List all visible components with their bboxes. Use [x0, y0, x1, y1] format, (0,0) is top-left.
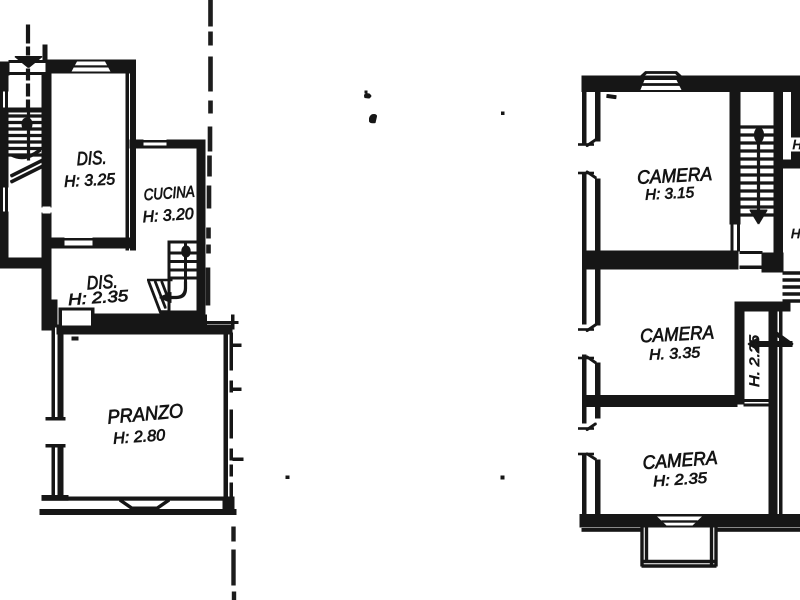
- svg-text:DIS.: DIS.: [76, 148, 107, 171]
- svg-text:H: 2.80: H: 2.80: [113, 427, 166, 448]
- svg-text:H: 3.20: H: 3.20: [142, 206, 194, 227]
- svg-text:H. 3.35: H. 3.35: [649, 344, 701, 364]
- svg-text:CAMERA: CAMERA: [640, 323, 715, 348]
- svg-text:H: H: [791, 226, 800, 241]
- svg-text:H: 3.15: H: 3.15: [645, 184, 695, 204]
- svg-text:H: 3.25: H: 3.25: [64, 171, 116, 191]
- svg-text:CAMERA: CAMERA: [642, 448, 718, 474]
- svg-text:CUCINA: CUCINA: [143, 184, 195, 205]
- svg-text:H: 2.35: H: 2.35: [68, 288, 129, 309]
- svg-text:H: H: [793, 137, 800, 152]
- svg-text:H: 2.35: H: 2.35: [653, 470, 709, 491]
- svg-text:PRANZO: PRANZO: [106, 400, 184, 429]
- svg-text:H. 2.25: H. 2.25: [746, 335, 762, 387]
